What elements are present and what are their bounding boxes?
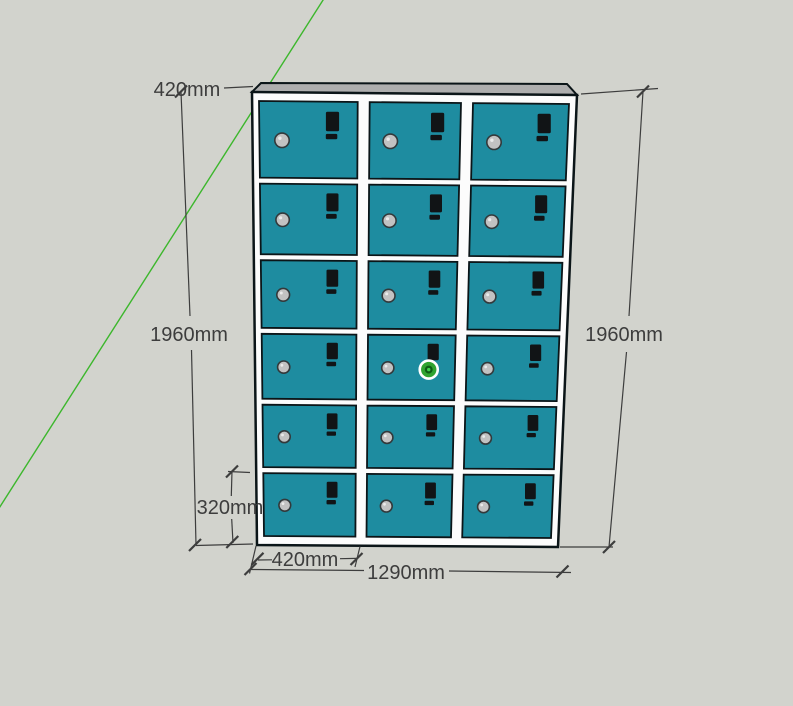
door-lock-handle-icon <box>533 271 545 288</box>
door-knob-icon <box>478 501 490 513</box>
dim-label-bottom-compartment-height[interactable]: 320mm <box>197 497 264 519</box>
door-knob-icon <box>487 135 501 149</box>
dim-label-right-height[interactable]: 1960mm <box>585 324 663 346</box>
locker-door[interactable] <box>260 184 357 255</box>
locker-door[interactable] <box>263 473 355 536</box>
door-lock-handle-icon <box>535 195 547 213</box>
locker-door[interactable] <box>464 406 557 469</box>
door-lock-handle-icon <box>327 343 338 360</box>
door-latch-icon <box>529 363 539 368</box>
door-knob-icon <box>278 431 290 443</box>
door-knob-highlight <box>278 137 281 140</box>
door-latch-icon <box>326 214 337 219</box>
door-lock-handle-icon <box>530 345 541 362</box>
door-lock-handle-icon <box>431 113 444 133</box>
door-knob-highlight <box>383 503 386 506</box>
locker-door[interactable] <box>462 475 553 538</box>
door-lock-handle-icon <box>327 270 339 287</box>
door-knob-highlight <box>386 217 389 220</box>
dim-label-left-height[interactable]: 1960mm <box>150 324 228 346</box>
door-latch-icon <box>429 215 440 220</box>
dim-label-top-depth[interactable]: 420mm <box>154 79 221 101</box>
locker-door[interactable] <box>261 260 357 328</box>
door-knob-highlight <box>480 504 483 507</box>
door-knob-icon <box>380 500 392 512</box>
door-knob-icon <box>480 432 492 444</box>
door-lock-handle-icon <box>426 414 437 430</box>
door-lock-handle-icon <box>326 193 338 211</box>
door-knob-highlight <box>387 138 390 141</box>
door-knob-highlight <box>486 293 489 296</box>
door-knob-highlight <box>280 292 283 295</box>
door-latch-icon <box>326 289 336 294</box>
door-knob-icon <box>382 289 395 302</box>
dim-label-door-width[interactable]: 420mm <box>272 549 339 571</box>
viewport-stage: 420mm 1960mm 1960mm 320mm 420mm 1290mm <box>0 0 793 706</box>
door-lock-handle-icon <box>538 114 551 134</box>
door-knob-icon <box>483 290 496 303</box>
door-knob-highlight <box>488 218 491 221</box>
door-latch-icon <box>425 501 434 505</box>
locker-door[interactable] <box>466 336 560 402</box>
selection-marker-dot <box>427 368 430 371</box>
door-knob-highlight <box>279 216 282 219</box>
door-knob-highlight <box>384 434 387 437</box>
locker-door[interactable] <box>469 186 565 257</box>
door-lock-handle-icon <box>430 194 442 212</box>
door-latch-icon <box>537 136 549 141</box>
locker-door[interactable] <box>263 405 357 468</box>
locker-door[interactable] <box>368 335 456 401</box>
door-knob-icon <box>383 134 397 148</box>
door-knob-icon <box>481 363 493 375</box>
door-latch-icon <box>327 500 336 504</box>
door-knob-icon <box>485 215 498 228</box>
door-lock-handle-icon <box>428 344 439 361</box>
locker-door[interactable] <box>259 101 358 179</box>
door-latch-icon <box>327 432 336 436</box>
door-lock-handle-icon <box>525 483 536 499</box>
door-knob-highlight <box>282 502 285 505</box>
door-latch-icon <box>426 432 435 436</box>
door-knob-icon <box>277 288 290 301</box>
door-lock-handle-icon <box>425 483 436 499</box>
door-knob-icon <box>275 133 289 147</box>
door-latch-icon <box>428 290 438 295</box>
door-lock-handle-icon <box>327 482 338 498</box>
door-lock-handle-icon <box>326 112 339 132</box>
dim-label-total-width[interactable]: 1290mm <box>367 562 445 584</box>
door-knob-highlight <box>490 139 493 142</box>
door-knob-highlight <box>482 435 485 438</box>
locker-door[interactable] <box>262 334 357 400</box>
door-latch-icon <box>532 291 542 296</box>
door-lock-handle-icon <box>528 415 539 431</box>
door-knob-icon <box>278 361 290 373</box>
locker-door[interactable] <box>467 262 562 330</box>
door-knob-highlight <box>281 434 284 437</box>
door-knob-icon <box>383 214 396 227</box>
door-knob-highlight <box>484 366 487 369</box>
locker-door[interactable] <box>367 406 454 469</box>
door-knob-icon <box>381 432 393 444</box>
door-knob-icon <box>276 213 289 226</box>
door-knob-highlight <box>281 364 284 367</box>
door-latch-icon <box>534 216 545 221</box>
sketchup-viewport-canvas[interactable]: 420mm 1960mm 1960mm 320mm 420mm 1290mm <box>0 0 793 706</box>
door-knob-highlight <box>385 365 388 368</box>
door-latch-icon <box>326 134 338 139</box>
door-knob-icon <box>382 362 394 374</box>
locker-cabinet <box>252 83 577 547</box>
door-lock-handle-icon <box>327 413 338 429</box>
locker-door[interactable] <box>368 261 457 329</box>
door-latch-icon <box>326 362 336 367</box>
door-latch-icon <box>524 501 533 505</box>
door-knob-icon <box>279 499 291 511</box>
locker-door[interactable] <box>367 474 453 537</box>
door-knob-highlight <box>385 292 388 295</box>
door-lock-handle-icon <box>429 271 441 288</box>
dim-line-320-upper <box>231 471 232 496</box>
locker-door[interactable] <box>471 103 569 180</box>
door-latch-icon <box>527 433 536 437</box>
door-latch-icon <box>430 135 442 140</box>
